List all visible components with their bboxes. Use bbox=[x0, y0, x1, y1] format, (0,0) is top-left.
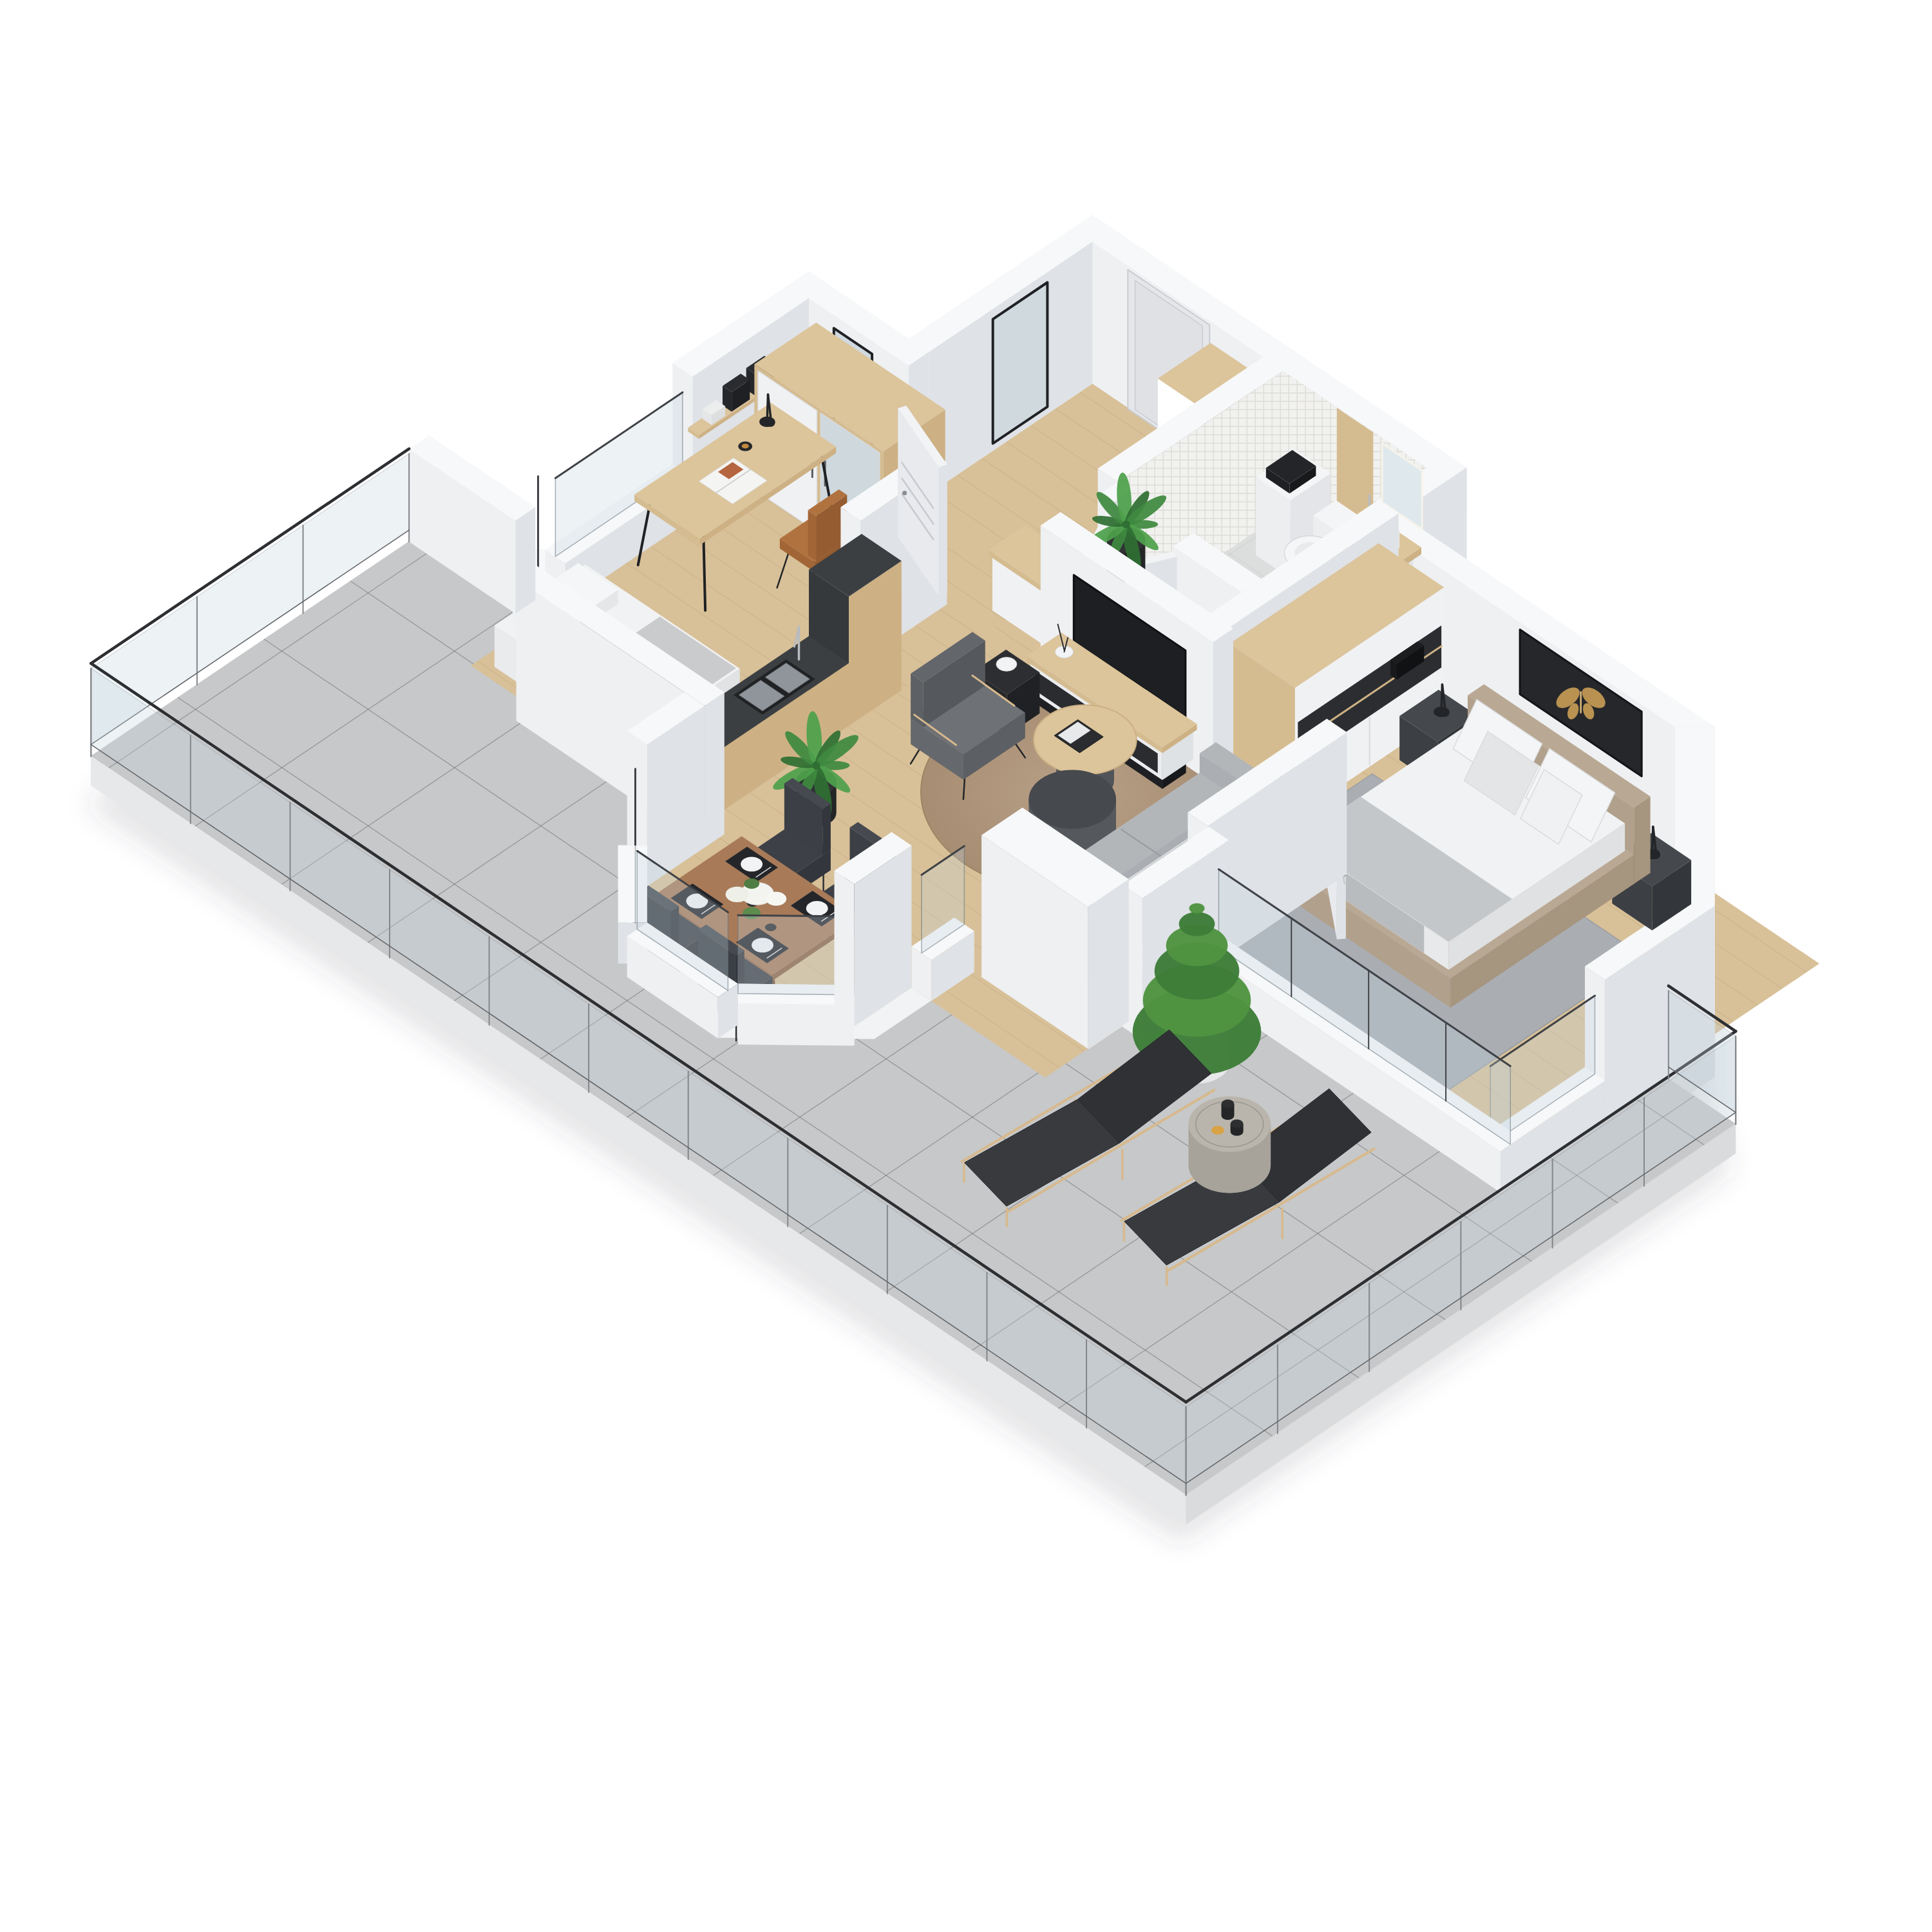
apartment-isometric-render bbox=[0, 0, 1932, 1932]
side-table-terrace bbox=[1188, 1097, 1271, 1193]
floor-plan-canvas bbox=[0, 0, 1932, 1932]
